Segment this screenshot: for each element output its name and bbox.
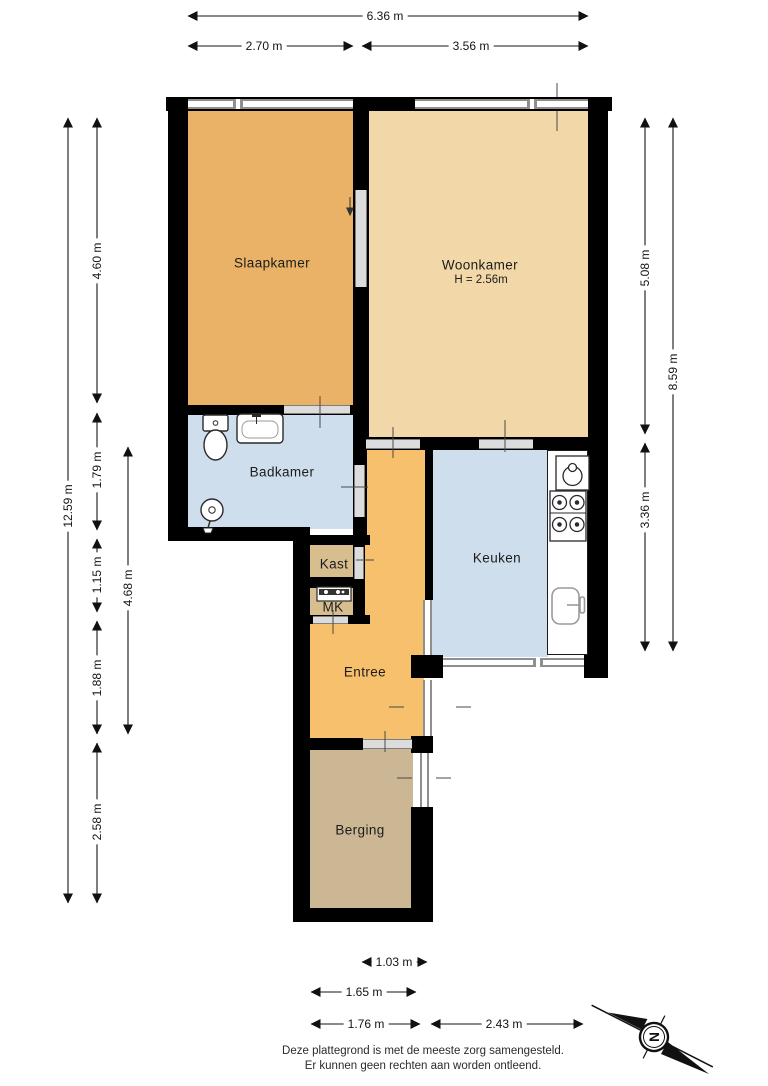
- label-kast: Kast: [320, 557, 349, 572]
- dim-bottom-4: 2.43 m: [482, 1017, 527, 1031]
- window-mullion-left: [233, 99, 243, 109]
- label-woonkamer: Woonkamer: [442, 258, 518, 273]
- window-mullion-right: [527, 99, 537, 109]
- window-top-right: [415, 99, 588, 109]
- door-berging: [363, 739, 412, 749]
- door-mk: [313, 616, 348, 624]
- wall-bottom: [293, 908, 433, 922]
- opening-woonkamer-keuken: [479, 439, 533, 449]
- disclaimer: Deze plattegrond is met de meeste zorg s…: [282, 1044, 564, 1074]
- dim-bottom-2: 1.65 m: [342, 985, 387, 999]
- dim-top-total: 6.36 m: [363, 9, 408, 23]
- dim-left-5: 2.58 m: [90, 800, 104, 845]
- wall-left-upper: [168, 97, 188, 541]
- dim-left-4: 1.88 m: [90, 656, 104, 701]
- wall-berging-right: [411, 807, 433, 908]
- wall-badkamer-bottom: [168, 527, 310, 541]
- label-badkamer: Badkamer: [250, 465, 315, 480]
- kitchen-counter: [547, 450, 588, 655]
- dim-left-inner: 4.68 m: [121, 566, 135, 611]
- window-berging: [420, 753, 429, 807]
- wall-keuken-corner-left: [411, 655, 443, 678]
- wall-keuken-corner-right: [584, 655, 608, 678]
- window-keuken-bottom: [443, 658, 584, 667]
- wall-left-lower: [293, 527, 310, 922]
- disclaimer-line-1: Deze plattegrond is met de meeste zorg s…: [282, 1044, 564, 1059]
- wall-kast-mk-divider: [310, 577, 353, 588]
- label-slaapkamer: Slaapkamer: [234, 256, 310, 271]
- wall-entree-keuken: [425, 447, 433, 600]
- dim-left-2: 1.79 m: [90, 448, 104, 493]
- dim-bottom-1: 1.03 m: [372, 955, 417, 969]
- dim-left-3: 1.15 m: [90, 553, 104, 598]
- door-badkamer-entree: [354, 465, 365, 517]
- label-entree: Entree: [344, 665, 386, 680]
- label-berging: Berging: [335, 823, 384, 838]
- door-slaapkamer-badkamer: [284, 405, 350, 414]
- door-kast: [354, 547, 364, 579]
- glass-slaapkamer-woonkamer: [355, 190, 367, 287]
- window-top-left: [188, 99, 353, 109]
- room-entree-upper: [363, 445, 426, 624]
- label-mk: MK: [322, 600, 343, 615]
- dim-right-1: 5.08 m: [638, 246, 652, 291]
- wall-entree-right-block: [411, 736, 433, 753]
- dim-left-1: 4.60 m: [90, 239, 104, 284]
- compass: N: [581, 984, 724, 1086]
- dim-left-total: 12.59 m: [61, 480, 75, 531]
- label-woonkamer-height: H = 2.56m: [454, 274, 507, 286]
- dim-top-right: 3.56 m: [449, 39, 494, 53]
- dim-top-left: 2.70 m: [242, 39, 287, 53]
- window-mullion-keuken: [533, 658, 543, 667]
- window-entree-1: [423, 600, 432, 655]
- room-woonkamer: [366, 107, 592, 439]
- dim-right-2: 3.36 m: [638, 488, 652, 533]
- window-entree-2: [423, 680, 432, 736]
- dim-bottom-3: 1.76 m: [344, 1017, 389, 1031]
- label-keuken: Keuken: [473, 551, 521, 566]
- disclaimer-line-2: Er kunnen geen rechten aan worden ontlee…: [282, 1059, 564, 1074]
- wall-berging-top: [293, 738, 363, 750]
- door-woonkamer-entree: [366, 439, 420, 449]
- wall-right: [588, 97, 608, 655]
- floor-plan: N Slaapkamer Woonkamer H = 2.56m Badkame…: [0, 0, 768, 1086]
- room-entree-lower: [308, 620, 424, 740]
- compass-n-label: N: [647, 1032, 662, 1042]
- dim-right-total: 8.59 m: [666, 350, 680, 395]
